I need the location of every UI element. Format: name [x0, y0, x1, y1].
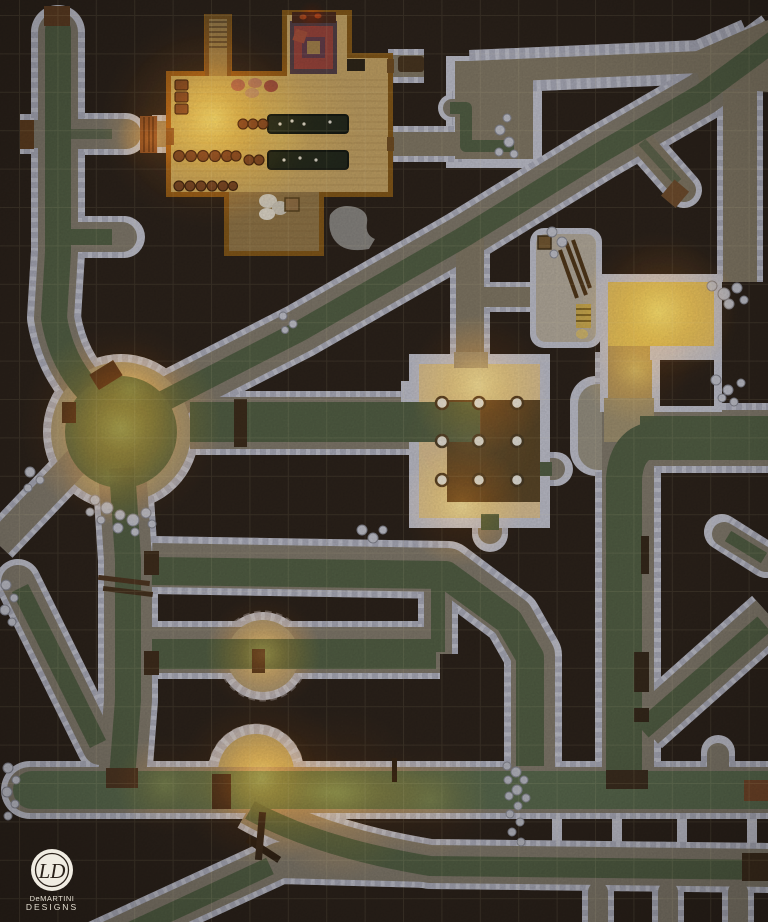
svg-text:LD: LD	[38, 859, 66, 883]
svg-text:DESIGNS: DESIGNS	[26, 902, 78, 912]
